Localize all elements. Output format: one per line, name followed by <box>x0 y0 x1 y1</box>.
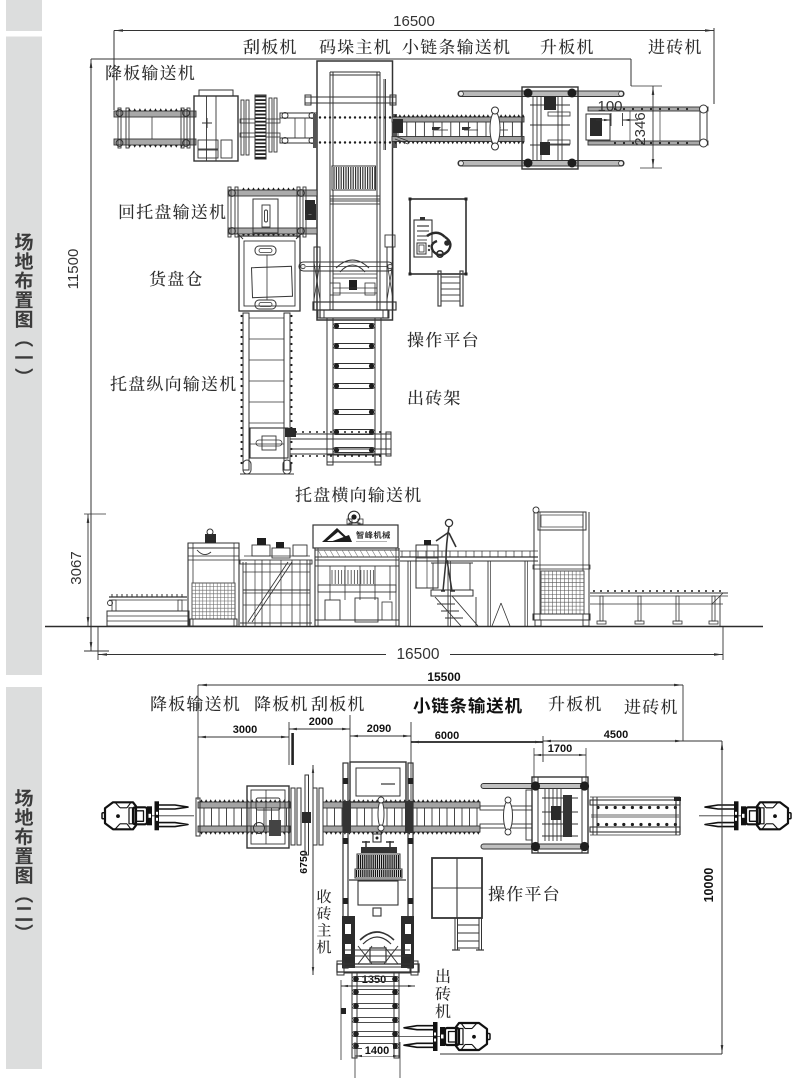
svg-text:1400: 1400 <box>365 1045 389 1057</box>
svg-text:1350: 1350 <box>362 974 386 986</box>
svg-text:3067: 3067 <box>68 551 85 584</box>
svg-text:2346: 2346 <box>632 112 649 145</box>
svg-text:15500: 15500 <box>427 670 461 684</box>
svg-text:16500: 16500 <box>393 13 435 30</box>
svg-text:11500: 11500 <box>65 249 82 290</box>
svg-text:2000: 2000 <box>309 716 333 728</box>
svg-text:16500: 16500 <box>396 646 439 663</box>
svg-text:1700: 1700 <box>548 743 572 755</box>
svg-text:4500: 4500 <box>604 729 628 741</box>
svg-text:3000: 3000 <box>233 724 257 736</box>
svg-text:6000: 6000 <box>435 730 459 742</box>
svg-text:10000: 10000 <box>702 868 716 903</box>
svg-text:2090: 2090 <box>367 723 391 735</box>
svg-text:100: 100 <box>597 98 622 115</box>
